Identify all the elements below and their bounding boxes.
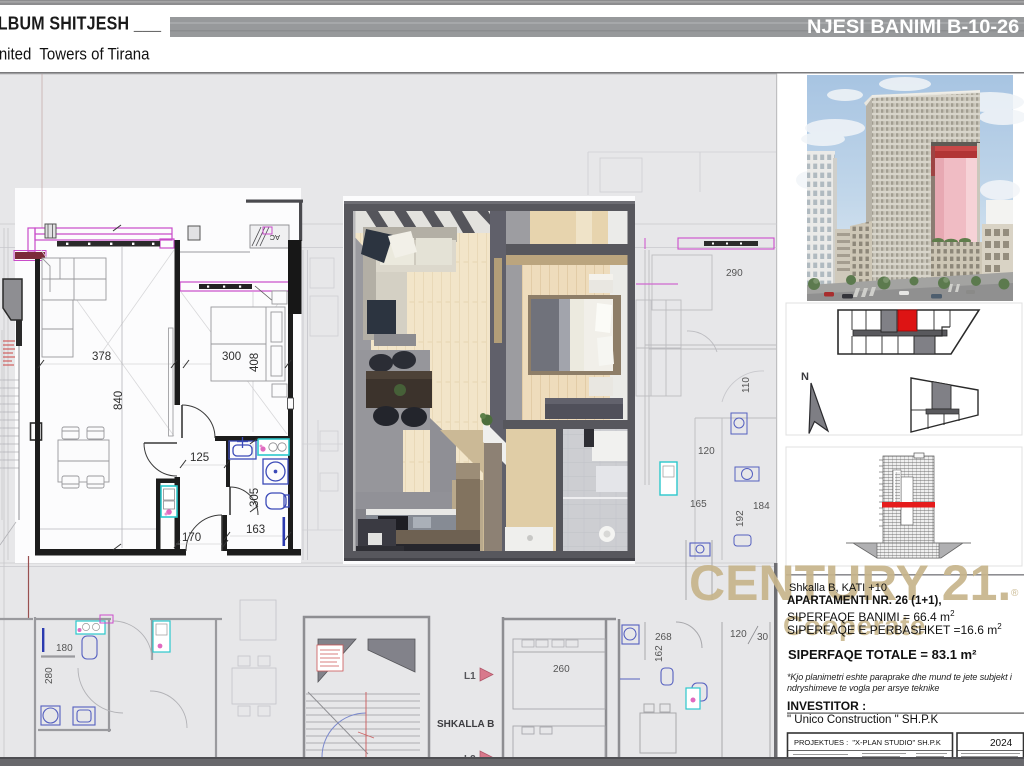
svg-text:268: 268 (655, 632, 672, 643)
svg-text:305: 305 (249, 488, 261, 507)
svg-text:170: 170 (182, 532, 201, 544)
svg-text:408: 408 (249, 353, 261, 372)
svg-text:290: 290 (726, 268, 743, 279)
svg-text:120: 120 (698, 446, 715, 457)
svg-text:110: 110 (741, 377, 752, 393)
svg-text:SHKALLA B: SHKALLA B (437, 719, 494, 730)
svg-text:260: 260 (553, 664, 570, 675)
svg-text:165: 165 (690, 499, 707, 510)
svg-text:AC: AC (269, 233, 280, 242)
svg-text:192: 192 (735, 510, 746, 527)
svg-text:280: 280 (44, 667, 55, 684)
svg-text:125: 125 (190, 452, 209, 464)
svg-text:378: 378 (92, 351, 111, 363)
svg-text:184: 184 (753, 501, 770, 512)
svg-text:L1: L1 (464, 671, 476, 682)
svg-text:180: 180 (56, 643, 73, 654)
svg-text:N: N (801, 371, 809, 383)
svg-text:120: 120 (730, 629, 747, 640)
svg-text:30: 30 (757, 632, 769, 643)
svg-text:840: 840 (113, 391, 125, 410)
svg-text:163: 163 (246, 524, 265, 536)
svg-text:300: 300 (222, 351, 241, 363)
svg-text:162: 162 (654, 645, 665, 662)
